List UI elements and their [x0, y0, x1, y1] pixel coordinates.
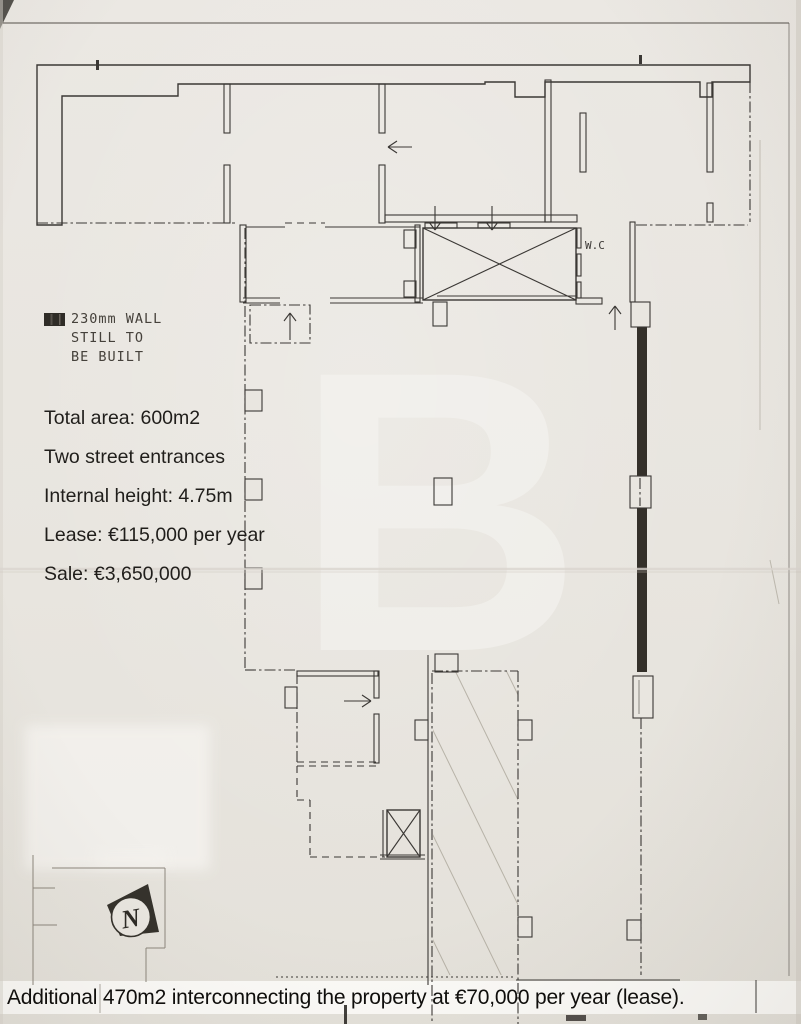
existing-walls-hatched [37, 65, 750, 225]
top-rooms-partitions [224, 80, 713, 223]
watermark-letter: B [294, 288, 583, 735]
property-facts: Total area: 600m2 Two street entrances I… [44, 399, 265, 594]
scanned-floor-plan-page: B [0, 0, 801, 1024]
north-compass: N [107, 884, 159, 937]
wall-swatch-icon [44, 313, 65, 326]
bottom-caption: Additional 470m2 interconnecting the pro… [0, 982, 801, 1018]
fact-lease-price: Lease: €115,000 per year [44, 516, 265, 555]
fact-total-area: Total area: 600m2 [44, 399, 265, 438]
legend-line: BE BUILT [71, 348, 162, 367]
wc-label: W.C [585, 239, 605, 252]
fact-internal-height: Internal height: 4.75m [44, 477, 265, 516]
legend-wall-to-be-built: 230mm WALL STILL TO BE BUILT [44, 310, 162, 367]
door-arrow-icon [388, 141, 412, 153]
legend-line: 230mm WALL [71, 310, 162, 329]
fact-sale-price: Sale: €3,650,000 [44, 555, 265, 594]
fact-street-entrances: Two street entrances [44, 438, 265, 477]
legend-line: STILL TO [71, 329, 162, 348]
lift-void [380, 810, 425, 859]
dark-built-wall [630, 302, 653, 718]
additional-area-hatch [433, 671, 518, 975]
